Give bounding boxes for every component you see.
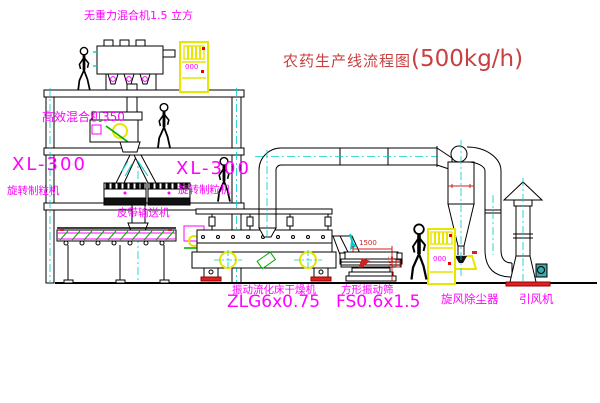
granulator-left xyxy=(104,183,146,205)
label-fan: 引风机 xyxy=(519,293,554,305)
dimension-screen-height: 550 xyxy=(386,256,392,267)
title-text: 农药生产线流程图 xyxy=(283,50,411,71)
fluid-bed-dryer xyxy=(192,209,336,281)
worker-figure xyxy=(78,47,90,89)
belt-conveyor xyxy=(57,228,176,283)
worker-figure xyxy=(412,224,427,279)
label-screen-model: FS0.6x1.5 xyxy=(336,294,420,312)
y-branch-pipe xyxy=(116,155,156,183)
indicator-dot xyxy=(449,234,452,237)
indicator-dot xyxy=(201,70,204,73)
zero-gravity-mixer xyxy=(93,40,175,112)
indicator-dot xyxy=(448,262,451,265)
label-cyclone: 旋风除尘器 xyxy=(441,293,499,305)
flow-diagram-canvas: 农药生产线流程图 (500kg/h) 无重力混合机1.5 立方 高效混合机350… xyxy=(0,0,600,403)
label-dryer-model: ZLG6x0.75 xyxy=(227,294,320,312)
label-high-efficiency-mixer: 高效混合机350 xyxy=(42,111,125,124)
diagram-title: 农药生产线流程图 (500kg/h) xyxy=(283,46,523,72)
dimension-screen-length: 1500 xyxy=(359,240,377,247)
label-granulator-right-model: XL-300 xyxy=(176,160,251,179)
label-granulator-right-name: 旋转制粒机 xyxy=(178,185,231,196)
induced-draft-fan xyxy=(506,256,550,286)
worker-figure xyxy=(158,104,170,148)
cabinet1-display: 000 xyxy=(185,64,198,71)
label-granulator-left-name: 旋转制粒机 xyxy=(7,186,60,197)
cyclone-downpipe xyxy=(485,195,515,279)
title-capacity: (500kg/h) xyxy=(411,46,523,72)
label-top-mixer: 无重力混合机1.5 立方 xyxy=(84,10,193,22)
label-belt-conveyor: 皮带输送机 xyxy=(117,208,170,219)
cabinet2-display: 000 xyxy=(433,256,446,263)
indicator-dot xyxy=(202,47,205,50)
label-granulator-left-model: XL-300 xyxy=(12,156,87,175)
